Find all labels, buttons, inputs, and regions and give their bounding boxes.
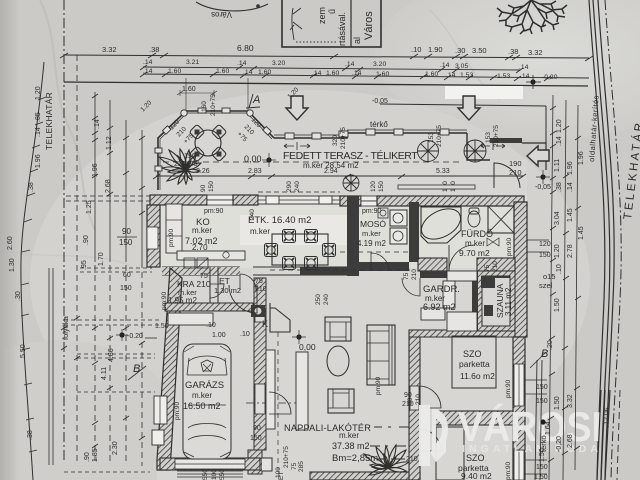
svg-text:2.30: 2.30 [112, 441, 119, 455]
svg-text:1.60: 1.60 [425, 71, 438, 78]
svg-text:3.20: 3.20 [373, 61, 386, 68]
svg-text:1.95 m2: 1.95 m2 [168, 296, 197, 305]
svg-text:.38: .38 [508, 47, 518, 56]
svg-text:160: 160 [201, 101, 208, 112]
svg-text:150: 150 [120, 285, 132, 292]
svg-text:.95: .95 [81, 260, 88, 270]
svg-text:16.50 m2: 16.50 m2 [183, 401, 221, 411]
svg-text:.14: .14 [312, 70, 322, 77]
svg-text:m.ker: m.ker [362, 229, 381, 238]
svg-text:INGATLANIRODA: INGATLANIRODA [462, 443, 602, 455]
svg-text:90: 90 [253, 425, 261, 432]
svg-text:.14: .14 [520, 73, 530, 80]
svg-text:550: 550 [202, 469, 209, 480]
svg-text:FÜRDŐ: FÜRDŐ [461, 229, 493, 239]
svg-text:0,00: 0,00 [299, 342, 316, 352]
svg-text:térkő: térkő [539, 435, 548, 452]
svg-text:1.50: 1.50 [534, 474, 548, 480]
svg-text:60: 60 [123, 272, 131, 279]
svg-text:210: 210 [509, 168, 522, 177]
svg-text:1.60: 1.60 [216, 68, 229, 75]
svg-text:K: K [262, 319, 268, 329]
svg-text:2.70: 2.70 [192, 243, 208, 252]
svg-text:3.04: 3.04 [554, 211, 561, 225]
svg-text:210+75: 210+75 [174, 161, 198, 168]
svg-text:320: 320 [332, 135, 339, 146]
svg-text:1.96: 1.96 [92, 163, 99, 177]
svg-text:6.80: 6.80 [237, 43, 254, 53]
svg-text:.14: .14 [143, 59, 153, 66]
svg-text:1.96: 1.96 [567, 161, 574, 175]
svg-text:ET: ET [219, 276, 230, 286]
svg-text:.14: .14 [143, 68, 153, 75]
svg-text:1.60: 1.60 [168, 68, 181, 75]
svg-text:o15: o15 [543, 272, 556, 281]
svg-text:1.53: 1.53 [460, 72, 473, 79]
svg-text:2.26: 2.26 [196, 168, 210, 175]
svg-text:1.11: 1.11 [554, 159, 561, 172]
svg-text:2.60: 2.60 [7, 236, 14, 250]
svg-text:9.70 m2: 9.70 m2 [459, 248, 490, 258]
svg-text:150: 150 [208, 181, 215, 192]
svg-text:196: 196 [184, 153, 196, 160]
svg-text:m.ker: m.ker [250, 227, 270, 236]
svg-text:2.94: 2.94 [324, 168, 338, 175]
svg-text:.14: .14 [446, 72, 456, 79]
svg-text:pm:90: pm:90 [174, 402, 181, 420]
svg-text:1.20: 1.20 [556, 119, 563, 133]
svg-text:1.60: 1.60 [258, 69, 271, 76]
svg-text:m.ker: m.ker [465, 239, 485, 248]
svg-text:.10: .10 [556, 264, 563, 274]
svg-text:.14: .14 [440, 62, 450, 69]
svg-text:1.50: 1.50 [155, 323, 169, 330]
svg-text:1.00: 1.00 [212, 332, 226, 339]
svg-text:3.20: 3.20 [272, 60, 285, 67]
svg-text:150: 150 [536, 398, 548, 405]
svg-text:m.ker: m.ker [339, 431, 359, 440]
svg-text:75: 75 [291, 462, 298, 470]
svg-text:153: 153 [428, 132, 435, 143]
svg-text:B: B [541, 348, 548, 360]
svg-text:pm:90: pm:90 [161, 292, 168, 310]
svg-text:5.50: 5.50 [20, 344, 27, 358]
svg-text:210+75: 210+75 [210, 94, 217, 116]
svg-text:150: 150 [536, 464, 548, 471]
svg-text:1.85: 1.85 [92, 448, 99, 462]
svg-text:1.20: 1.20 [35, 86, 42, 100]
svg-text:1.12: 1.12 [106, 136, 113, 150]
svg-text:m.ker: m.ker [192, 391, 212, 400]
svg-text:szel: szel [539, 281, 553, 290]
svg-text:ű: ű [327, 9, 337, 14]
svg-text:240: 240 [249, 209, 256, 220]
svg-text:.14: .14 [94, 119, 101, 129]
svg-text:m.ker: m.ker [192, 226, 212, 235]
svg-text:90: 90 [404, 392, 412, 399]
svg-text:pm:90: pm:90 [362, 208, 382, 215]
svg-text:.85: .85 [35, 112, 42, 122]
svg-text:.90: .90 [84, 452, 91, 462]
svg-text:3.11 m2: 3.11 m2 [504, 287, 513, 316]
svg-text:210: 210 [402, 401, 414, 408]
svg-text:5.33: 5.33 [436, 168, 450, 175]
svg-text:210+75: 210+75 [283, 446, 290, 468]
svg-text:1.90: 1.90 [428, 45, 443, 54]
svg-text:.14: .14 [567, 182, 574, 192]
svg-text:Város: Város [363, 11, 375, 40]
svg-text:TELEKHATÁR: TELEKHATÁR [44, 92, 54, 150]
svg-text:3.05: 3.05 [455, 63, 468, 70]
svg-text:1.25: 1.25 [86, 200, 93, 214]
svg-text:ÉTK. 16.40 m2: ÉTK. 16.40 m2 [248, 215, 311, 226]
svg-text:210: 210 [415, 394, 422, 405]
svg-text:3.50: 3.50 [472, 46, 487, 55]
svg-text:.30: .30 [15, 291, 22, 301]
svg-text:pm:90: pm:90 [204, 208, 224, 215]
svg-text:12.06: 12.06 [603, 407, 611, 425]
svg-text:120: 120 [370, 181, 377, 192]
svg-text:1.70: 1.70 [98, 252, 105, 266]
svg-text:3.32: 3.32 [567, 394, 574, 408]
svg-text:3.21: 3.21 [186, 59, 199, 66]
svg-text:-0.20: -0.20 [127, 333, 143, 340]
svg-text:pm:90: pm:90 [168, 229, 175, 247]
svg-text:190: 190 [509, 159, 522, 168]
svg-text:240: 240 [294, 181, 301, 192]
svg-text:-0,20: -0,20 [556, 436, 563, 452]
svg-text:285: 285 [298, 461, 305, 472]
svg-text:0,00: 0,00 [244, 154, 262, 164]
svg-text:1.60: 1.60 [326, 70, 339, 77]
svg-text:210: 210 [406, 456, 418, 463]
svg-text:-0,05: -0,05 [535, 184, 551, 191]
svg-text:75: 75 [200, 273, 208, 280]
svg-text:.14: .14 [243, 69, 253, 76]
svg-text:153: 153 [485, 132, 492, 143]
svg-text:al: al [352, 37, 362, 44]
svg-text:1.50: 1.50 [554, 298, 561, 312]
svg-text:zem: zem [317, 7, 327, 24]
svg-text:150: 150 [378, 181, 385, 192]
svg-text:150: 150 [536, 384, 548, 391]
svg-text:240: 240 [323, 294, 330, 305]
svg-text:A: A [252, 94, 260, 106]
svg-text:120: 120 [539, 241, 551, 248]
svg-text:75: 75 [255, 278, 263, 285]
svg-text:pm:90: pm:90 [375, 377, 382, 395]
svg-text:1.30: 1.30 [9, 258, 16, 272]
svg-text:90: 90 [200, 184, 207, 192]
svg-text:.14: .14 [352, 70, 362, 77]
svg-text:GARÁZS: GARÁZS [185, 380, 224, 391]
svg-text:210: 210 [255, 286, 267, 293]
svg-text:.14: .14 [519, 64, 529, 71]
svg-text:2.78: 2.78 [567, 244, 574, 258]
svg-text:1.60: 1.60 [182, 86, 196, 93]
svg-text:folyóka: folyóka [61, 315, 70, 340]
svg-text:Bm=2,85m: Bm=2,85m [332, 453, 378, 464]
svg-text:4.86: 4.86 [108, 348, 115, 362]
svg-text:.14: .14 [345, 61, 355, 68]
svg-text:térkő: térkő [370, 120, 388, 129]
svg-text:11.6o m2: 11.6o m2 [460, 371, 495, 381]
svg-text:-0,05: -0,05 [372, 98, 388, 105]
svg-text:6.92 m2: 6.92 m2 [423, 302, 456, 312]
svg-text:Város: Város [211, 10, 232, 19]
svg-text:.10: .10 [240, 331, 250, 338]
svg-text:.14: .14 [556, 136, 563, 146]
svg-text:MOSÓ: MOSÓ [360, 219, 386, 229]
svg-text:9.40 m2: 9.40 m2 [461, 471, 492, 480]
svg-text:SZO: SZO [463, 349, 482, 359]
svg-text:90: 90 [122, 227, 131, 236]
svg-text:150: 150 [250, 435, 262, 442]
svg-text:2.68: 2.68 [105, 179, 112, 193]
svg-text:210: 210 [492, 261, 499, 272]
svg-text:1.20: 1.20 [554, 244, 561, 258]
svg-text:1.96: 1.96 [35, 154, 42, 168]
svg-text:210+75: 210+75 [493, 125, 500, 147]
svg-text:210: 210 [411, 269, 418, 280]
svg-text:3.32: 3.32 [528, 48, 543, 57]
svg-text:3.32: 3.32 [102, 45, 117, 54]
svg-text:.38: .38 [556, 182, 563, 192]
svg-text:1.45: 1.45 [578, 226, 585, 240]
svg-text:.90: .90 [83, 235, 90, 245]
svg-text:ET: ET [278, 472, 285, 480]
svg-text:2.68: 2.68 [567, 434, 574, 448]
svg-text:550: 550 [219, 469, 226, 480]
svg-text:250: 250 [315, 294, 322, 305]
svg-text:4.11: 4.11 [101, 367, 108, 380]
svg-text:37.38 m2: 37.38 m2 [332, 441, 370, 451]
svg-text:100: 100 [211, 469, 218, 480]
svg-text:290: 290 [286, 181, 293, 192]
svg-text:150: 150 [539, 252, 551, 259]
svg-text:.10: .10 [206, 322, 216, 329]
svg-text:.14: .14 [237, 60, 247, 67]
svg-text:.10: .10 [411, 45, 421, 54]
svg-text:150: 150 [119, 238, 133, 247]
svg-text:1.53: 1.53 [497, 73, 510, 80]
svg-text:210+75: 210+75 [436, 125, 443, 147]
svg-text:75: 75 [403, 272, 410, 280]
svg-text:.30: .30 [455, 46, 465, 55]
svg-text:.14: .14 [35, 127, 42, 137]
svg-text:1.30 m2: 1.30 m2 [214, 286, 241, 295]
svg-text:1.60: 1.60 [376, 71, 389, 78]
svg-text:pm:90: pm:90 [505, 380, 512, 398]
svg-text:.38: .38 [149, 45, 159, 54]
svg-text:pm:90: pm:90 [506, 238, 513, 256]
svg-text:75: 75 [484, 264, 491, 272]
svg-text:1.45: 1.45 [567, 208, 574, 222]
svg-text:2.83: 2.83 [248, 168, 262, 175]
svg-text:1.96: 1.96 [578, 151, 585, 165]
svg-text:210+75: 210+75 [340, 127, 347, 149]
svg-text:rtásával.: rtásával. [337, 12, 347, 46]
svg-text:parketta: parketta [459, 359, 490, 369]
svg-text:-0,20: -0,20 [542, 74, 558, 81]
svg-text:pm:90: pm:90 [505, 462, 512, 480]
svg-text:.38: .38 [28, 182, 35, 192]
svg-text:1.64: 1.64 [545, 421, 552, 435]
svg-text:.38: .38 [27, 430, 34, 440]
svg-text:4.19 m2: 4.19 m2 [357, 239, 386, 248]
svg-text:1.50: 1.50 [554, 396, 561, 410]
